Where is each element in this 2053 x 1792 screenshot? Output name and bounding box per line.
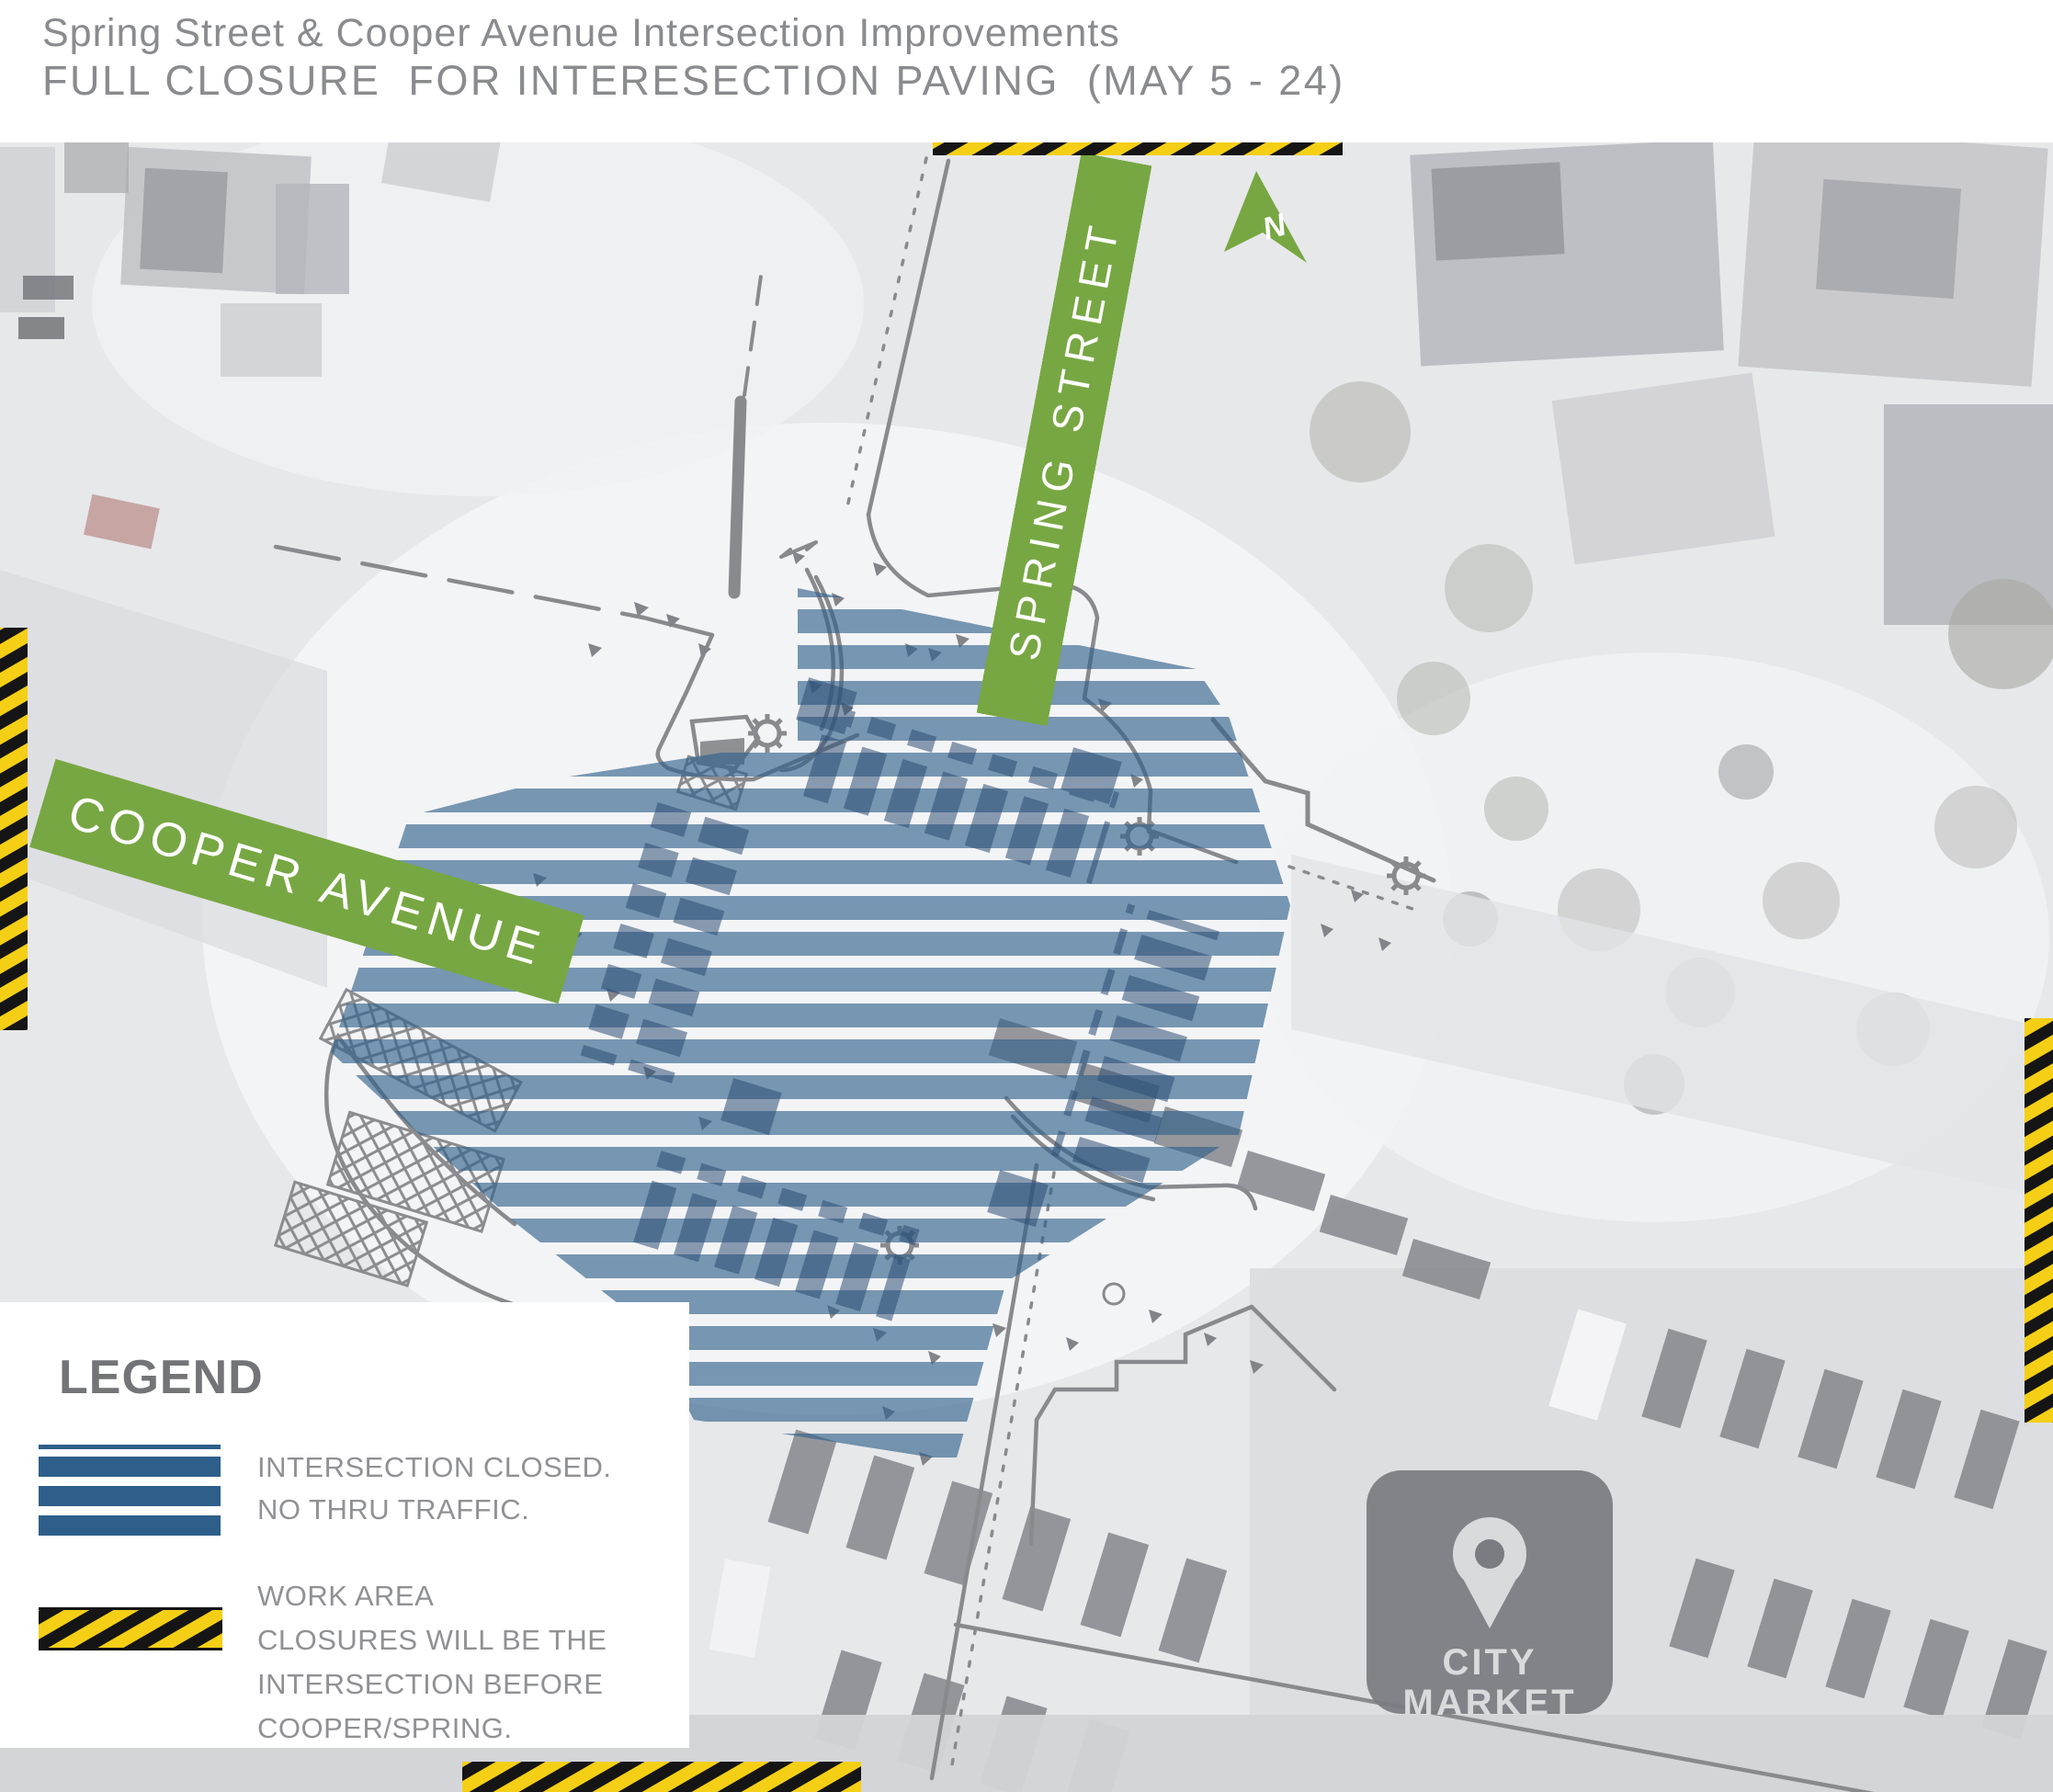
legend-heading: LEGEND <box>59 1351 264 1404</box>
city-market-label-line2: MARKET <box>1402 1683 1576 1723</box>
hazard-tape-bottom <box>462 1762 861 1792</box>
header: Spring Street & Cooper Avenue Intersecti… <box>0 0 2053 142</box>
closure-map: SPRING STREET COOPER AVENUE N LEGEND <box>0 0 2053 1792</box>
city-market-label-line1: CITY <box>1442 1642 1537 1683</box>
legend-hazard-tape-swatch <box>39 1607 222 1650</box>
hazard-tape-left <box>0 628 28 1030</box>
legend-blue-stripes-swatch <box>39 1445 221 1536</box>
legend-panel: LEGEND INTERSECTION CLOSED. NO THRU TRAF… <box>0 1302 689 1748</box>
city-market-badge: CITY MARKET <box>1367 1470 1613 1723</box>
legend-item-work-line1: WORK AREA <box>257 1580 434 1612</box>
legend-item-work-line4: COOPER/SPRING. <box>257 1712 512 1744</box>
page-title: Spring Street & Cooper Avenue Intersecti… <box>42 11 1120 56</box>
hazard-tape-right <box>2025 1018 2053 1423</box>
legend-item-work-line2: CLOSURES WILL BE THE <box>257 1624 607 1656</box>
closure-notice-page: SPRING STREET COOPER AVENUE N LEGEND <box>0 0 2053 1792</box>
legend-item-closed-line2: NO THRU TRAFFIC. <box>257 1493 529 1525</box>
legend-item-work-line3: INTERSECTION BEFORE <box>257 1668 603 1700</box>
legend-item-closed-line1: INTERSECTION CLOSED. <box>257 1451 612 1483</box>
page-subtitle: FULL CLOSURE FOR INTERESECTION PAVING (M… <box>42 57 1345 105</box>
